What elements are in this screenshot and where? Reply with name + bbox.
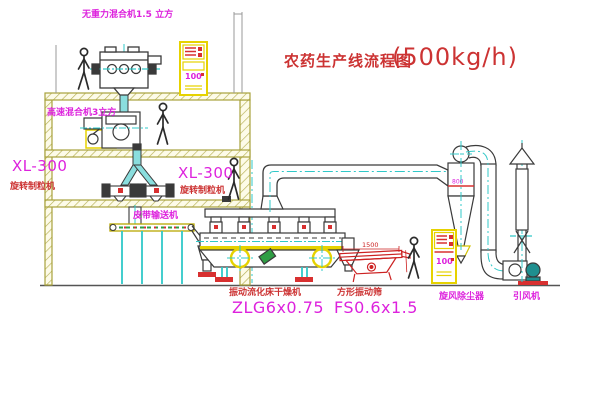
label-gravity-free-mixer: 无重力混合机1.5 立方 (82, 11, 173, 20)
gravity-free-mixer (90, 47, 161, 114)
panel-ground-display: 100 (436, 257, 453, 266)
label-high-speed-mixer: 高速混合机3立方 (47, 109, 116, 118)
panel-top-display: 100 (185, 72, 202, 81)
dryer-exhaust-hood (261, 196, 283, 209)
label-granulator-left-model: XL-300 (12, 159, 67, 174)
control-cabinet-ground: 100 (432, 230, 456, 283)
worker-icon (158, 103, 169, 144)
fluid-bed-dryer (196, 196, 359, 282)
label-granulator-center-name: 旋转制粒机 (180, 187, 225, 196)
cyclone-dimension: 800 (452, 179, 464, 186)
cyclone-dust-collector: 800 (448, 141, 516, 279)
label-belt-conveyor: 皮带输送机 (133, 212, 178, 221)
induced-draft-fan (503, 261, 548, 285)
label-fan: 引风机 (513, 293, 540, 302)
diagram-canvas: 100 (0, 0, 600, 403)
label-granulator-center-model: XL-300 (178, 166, 233, 181)
exhaust-duct (263, 165, 458, 210)
label-dryer-model: ZLG6x0.75 (232, 300, 324, 316)
label-screen-name: 方形振动筛 (337, 289, 382, 298)
control-cabinet-top: 100 (180, 42, 207, 95)
diagram-capacity: (500kg/h) (392, 45, 518, 69)
worker-icon (79, 48, 90, 89)
label-dryer-name: 振动流化床干燥机 (229, 289, 301, 298)
label-screen-model: FS0.6x1.5 (334, 300, 418, 316)
fan-motor (526, 263, 540, 277)
label-cyclone: 旋风除尘器 (439, 293, 484, 302)
label-granulator-left-name: 旋转制粒机 (10, 183, 55, 192)
screen-dimension: 1500 (362, 241, 379, 249)
